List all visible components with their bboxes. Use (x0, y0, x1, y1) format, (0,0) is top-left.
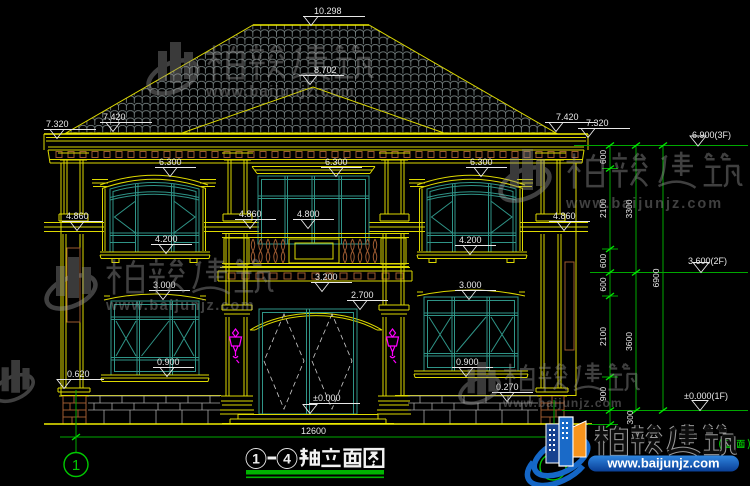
svg-text:1: 1 (72, 457, 80, 474)
svg-text:±0.000: ±0.000 (313, 393, 340, 403)
svg-text:600: 600 (598, 254, 608, 268)
svg-text:3.200: 3.200 (315, 272, 338, 282)
svg-text:3600: 3600 (624, 332, 634, 351)
svg-text:www.baijunjz.com: www.baijunjz.com (565, 196, 723, 212)
svg-text:www.baijunjz.com: www.baijunjz.com (502, 396, 623, 410)
svg-text:4: 4 (283, 451, 291, 467)
svg-text:300: 300 (625, 410, 635, 424)
svg-text:4.200: 4.200 (155, 234, 178, 244)
svg-text:6.300: 6.300 (470, 157, 493, 167)
svg-text:www.baijunjz.com: www.baijunjz.com (205, 84, 355, 100)
svg-text:7.420: 7.420 (103, 112, 126, 122)
svg-text:10.298: 10.298 (314, 6, 342, 16)
svg-text:2.700: 2.700 (351, 290, 374, 300)
svg-text:3.000: 3.000 (459, 280, 482, 290)
svg-text:7.420: 7.420 (556, 112, 579, 122)
svg-text:6.300: 6.300 (159, 157, 182, 167)
svg-text:6.900(3F): 6.900(3F) (692, 130, 731, 140)
svg-text:6.300: 6.300 (325, 157, 348, 167)
svg-text:2100: 2100 (598, 327, 608, 346)
svg-text:0.620: 0.620 (67, 369, 90, 379)
svg-text:4.200: 4.200 (459, 235, 482, 245)
svg-text:4.860: 4.860 (239, 209, 262, 219)
svg-text:0.900: 0.900 (456, 357, 479, 367)
svg-text:12600: 12600 (301, 426, 326, 436)
svg-text:4.860: 4.860 (553, 211, 576, 221)
svg-text:1: 1 (252, 451, 260, 467)
svg-text:±0.000(1F): ±0.000(1F) (684, 391, 728, 401)
svg-text:7.320: 7.320 (586, 118, 609, 128)
svg-text:7.320: 7.320 (46, 119, 69, 129)
svg-text:www.baijunjz.com: www.baijunjz.com (606, 456, 719, 471)
svg-text:4.860: 4.860 (66, 211, 89, 221)
svg-text:600: 600 (598, 277, 608, 291)
svg-text:6900: 6900 (651, 268, 661, 287)
svg-text:0.900: 0.900 (157, 357, 180, 367)
svg-text:4.800: 4.800 (297, 209, 320, 219)
svg-text:www.baijunjz.com: www.baijunjz.com (105, 298, 255, 314)
